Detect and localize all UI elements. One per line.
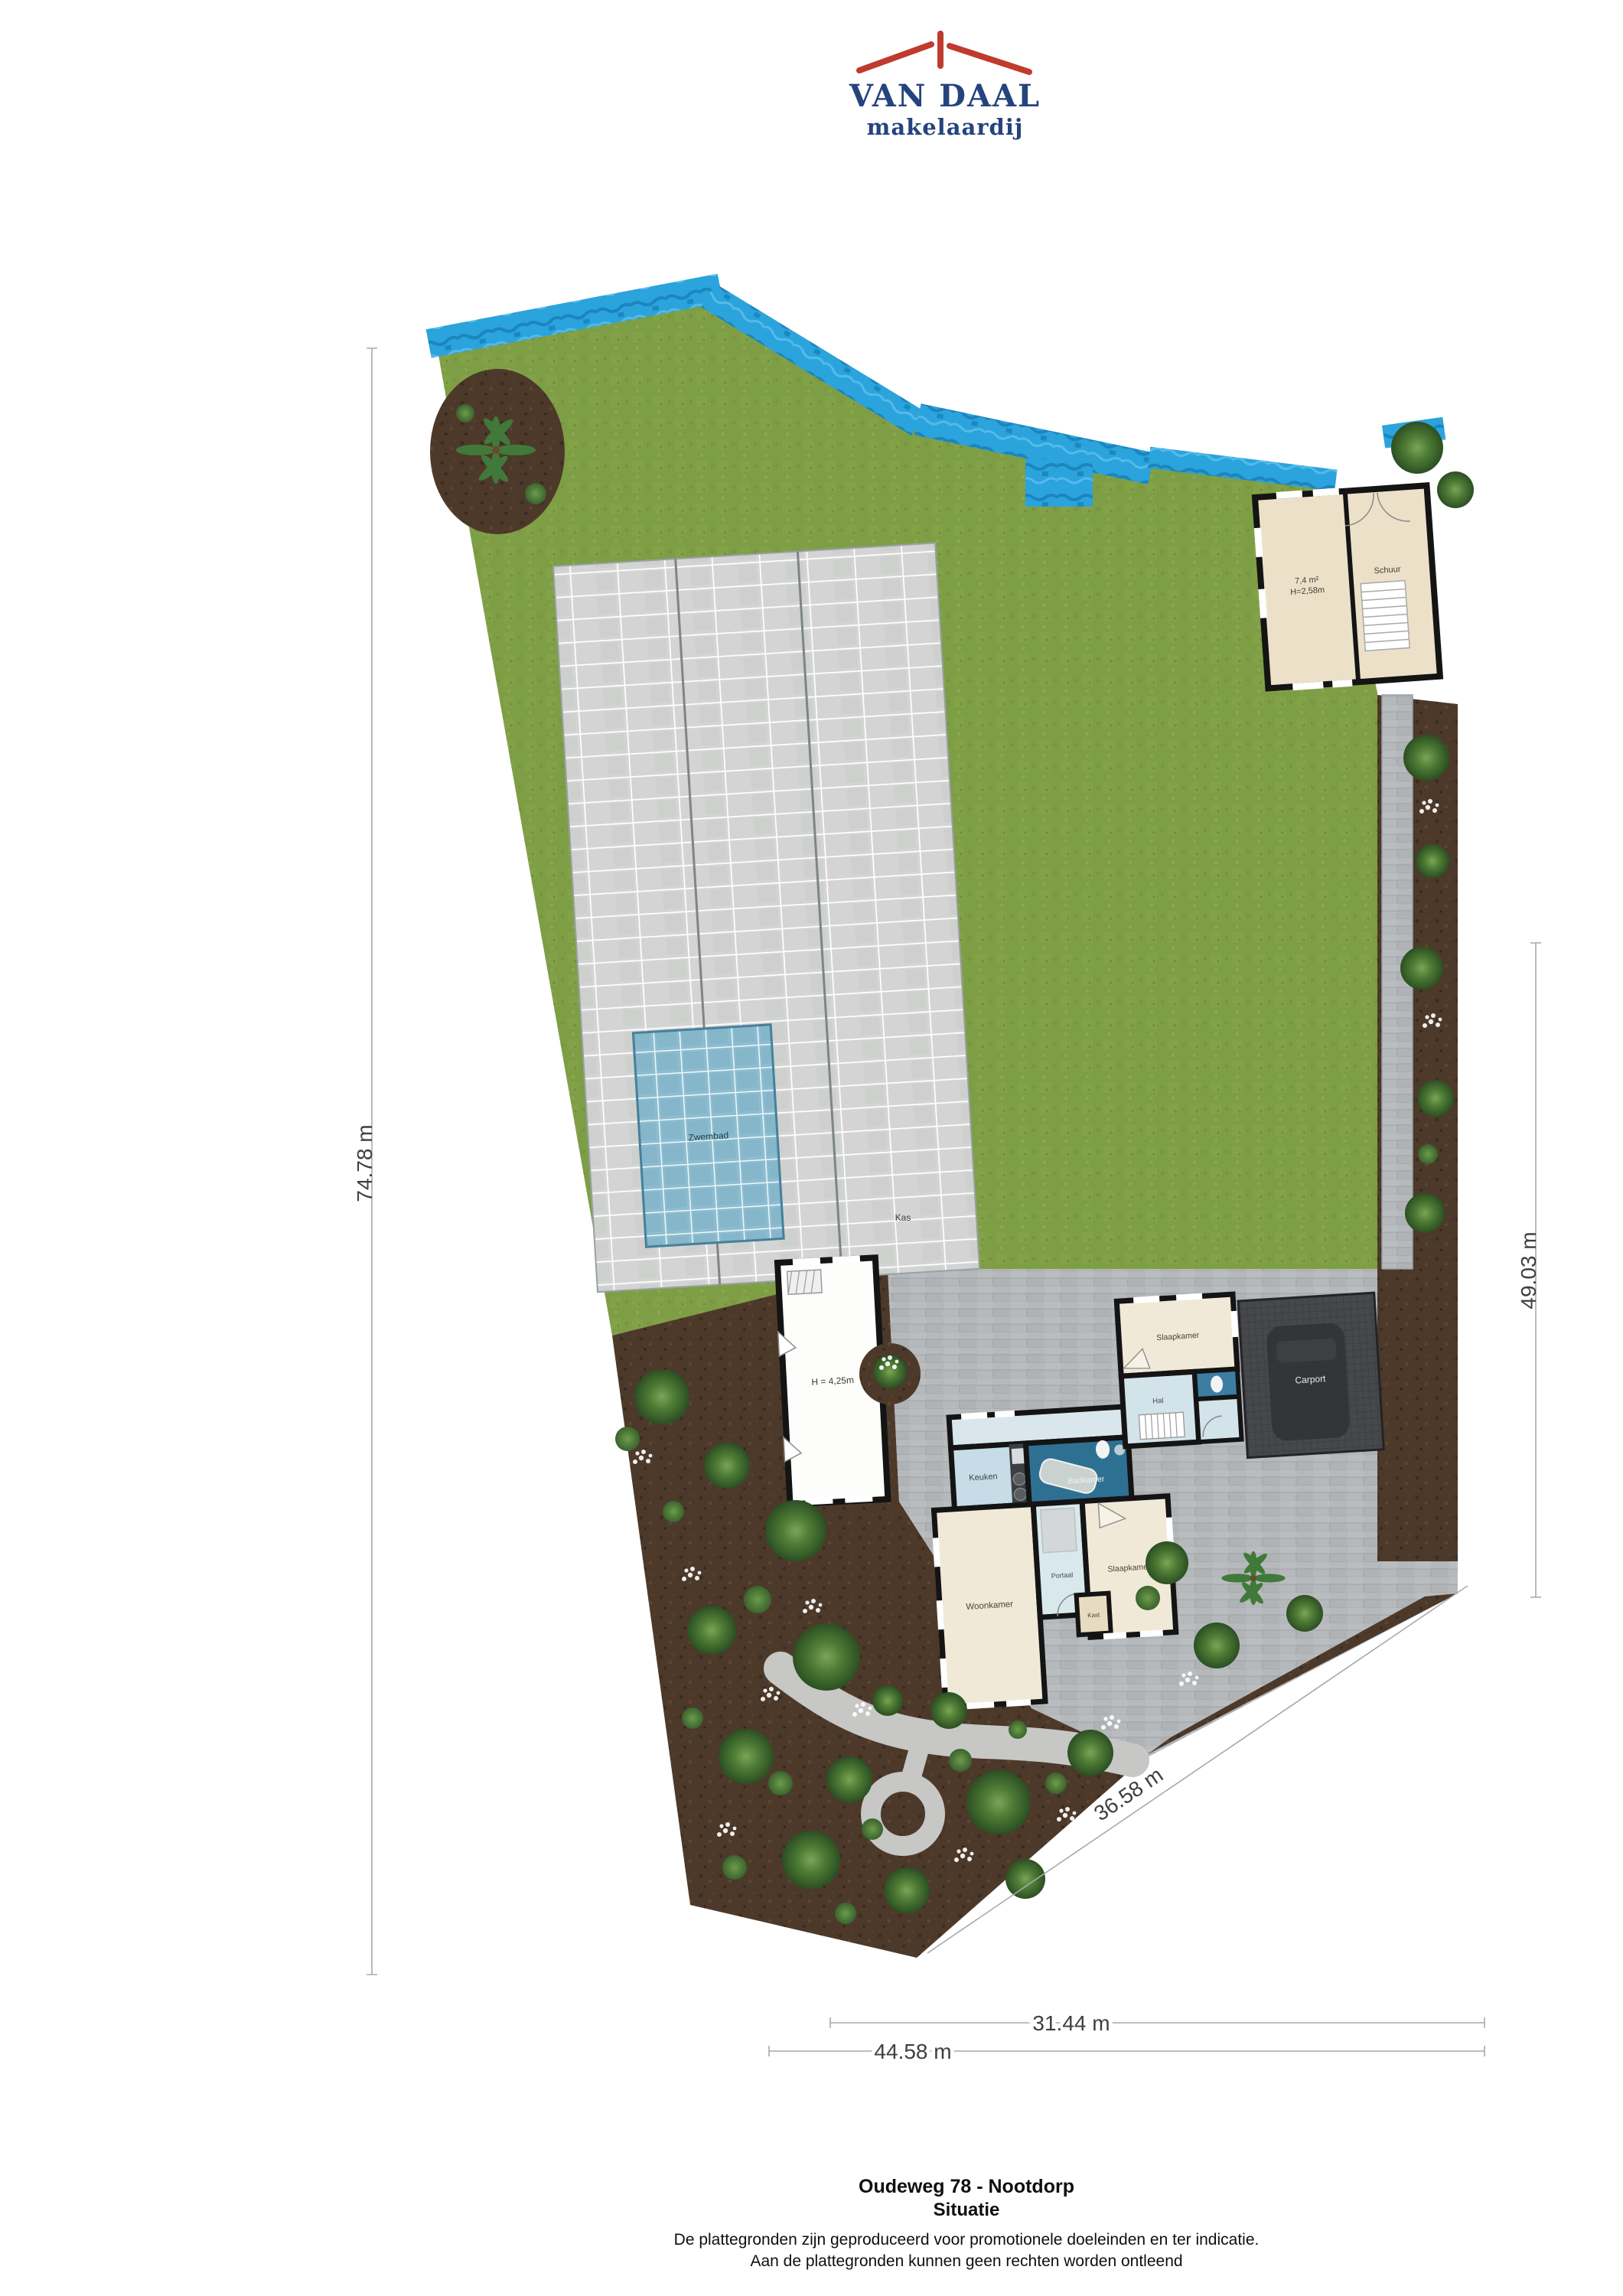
barn-height-label: H = 4,25m bbox=[811, 1375, 854, 1388]
dimension-bottom-lower-label: 44.58 m bbox=[874, 2040, 951, 2063]
site-plan-drawing: Zwembad Kas 7,4 m² H=2,58m Schuur bbox=[0, 0, 1623, 2296]
sheet-title: Situatie bbox=[431, 2199, 1502, 2222]
outbuilding-room-label: Schuur bbox=[1374, 565, 1401, 576]
room-entree bbox=[1196, 1397, 1241, 1442]
sheet-footer: Oudeweg 78 - Nootdorp Situatie De platte… bbox=[431, 2175, 1502, 2272]
outbuilding: 7,4 m² H=2,58m Schuur bbox=[1252, 481, 1441, 692]
room-kast: Kast bbox=[1077, 1593, 1111, 1635]
carport: Carport bbox=[1238, 1293, 1383, 1457]
keuken-label: Keuken bbox=[969, 1472, 998, 1482]
carport-label: Carport bbox=[1295, 1373, 1326, 1385]
room-slaapkamer-boven: Slaapkamer bbox=[1116, 1294, 1237, 1376]
dimension-right-label: 49.03 m bbox=[1517, 1231, 1540, 1309]
portaal-label: Portaal bbox=[1051, 1570, 1073, 1580]
barn-skylight bbox=[787, 1270, 823, 1294]
property-address: Oudeweg 78 - Nootdorp bbox=[431, 2175, 1502, 2199]
room-badkamer: Badkamer bbox=[1025, 1437, 1132, 1505]
room-hal: Hal bbox=[1121, 1371, 1198, 1446]
dimension-bottom-upper-label: 31.44 m bbox=[1032, 2011, 1110, 2035]
kas-slab: Zwembad bbox=[553, 543, 979, 1292]
swimming-pool: Zwembad bbox=[633, 1025, 784, 1247]
room-keuken: Keuken bbox=[951, 1443, 1030, 1509]
room-woonkamer: Woonkamer bbox=[934, 1504, 1045, 1707]
disclaimer-line-2: Aan de plattegronden kunnen geen rechten… bbox=[431, 2251, 1502, 2272]
situation-plan-page: VAN DAAL makelaardij bbox=[0, 0, 1623, 2296]
kast-label: Kast bbox=[1087, 1611, 1100, 1619]
outbuilding-area-label: 7,4 m² bbox=[1295, 575, 1319, 585]
disclaimer-line-1: De plattegronden zijn geproduceerd voor … bbox=[431, 2229, 1502, 2250]
room-toilet bbox=[1194, 1369, 1239, 1399]
hal-label: Hal bbox=[1152, 1397, 1164, 1406]
dimension-left-label: 74.78 m bbox=[353, 1124, 376, 1202]
kas-label: Kas bbox=[895, 1212, 911, 1223]
